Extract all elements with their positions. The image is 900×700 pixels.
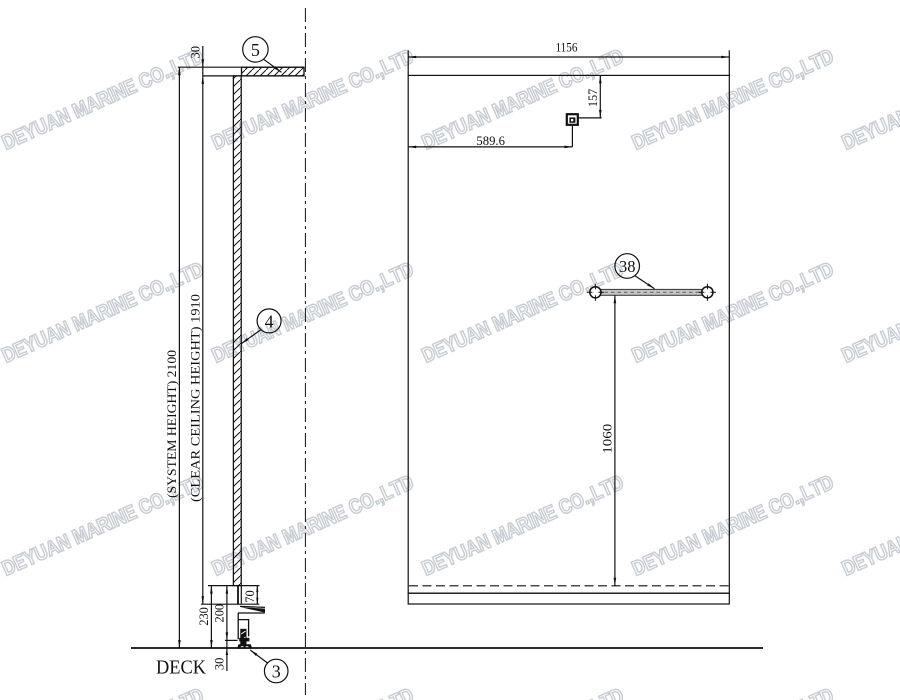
- svg-text:1060: 1060: [600, 424, 615, 454]
- svg-text:(CLEAR CEILING HEIGHT) 1910: (CLEAR CEILING HEIGHT) 1910: [188, 294, 203, 502]
- svg-text:30: 30: [188, 46, 203, 59]
- svg-text:230: 230: [196, 607, 211, 626]
- svg-text:157: 157: [585, 88, 600, 107]
- svg-text:200: 200: [212, 604, 227, 623]
- svg-text:38: 38: [619, 257, 636, 276]
- svg-text:5: 5: [251, 40, 260, 60]
- svg-text:3: 3: [272, 661, 281, 681]
- svg-text:589.6: 589.6: [476, 134, 505, 148]
- svg-text:70: 70: [242, 590, 257, 603]
- svg-text:(SYSTEM HEIGHT) 2100: (SYSTEM HEIGHT) 2100: [164, 350, 179, 498]
- svg-text:DECK: DECK: [156, 657, 206, 679]
- svg-text:30: 30: [212, 658, 227, 671]
- svg-text:4: 4: [265, 311, 274, 331]
- svg-text:1156: 1156: [556, 41, 578, 55]
